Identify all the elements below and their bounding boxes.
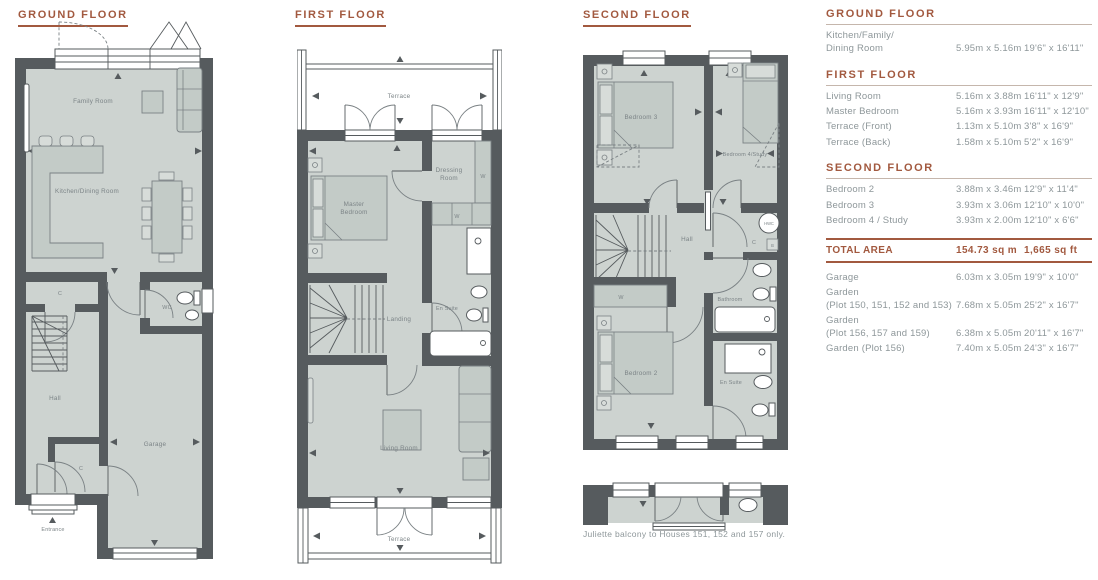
table-row: Garage 6.03m x 3.05m 19'9" x 10'0" <box>826 272 1092 285</box>
open-door-leaf <box>706 192 711 230</box>
wardrobe1-label: W <box>480 174 486 180</box>
garage-door <box>113 548 197 559</box>
table-row: Terrace (Back) 1.58m x 5.10m 5'2" x 16'9… <box>826 137 1092 150</box>
garage-label: Garage <box>144 441 167 448</box>
table-row: Garden (Plot 156, 157 and 159) 6.38m x 5… <box>826 315 1092 341</box>
hall-label: Hall <box>49 395 61 402</box>
juliette-balcony-detail <box>583 483 788 530</box>
window-left <box>24 84 29 152</box>
landing-label: Landing <box>387 316 411 323</box>
family-room-label: Family Room <box>73 98 113 105</box>
table-row: Terrace (Front) 1.13m x 5.10m 3'8" x 16'… <box>826 121 1092 134</box>
hall-label: Hall <box>681 236 693 243</box>
table-row: Kitchen/Family/ Dining Room 5.95m x 5.16… <box>826 30 1092 56</box>
table-row: Garden (Plot 150, 151, 152 and 153) 7.68… <box>826 287 1092 313</box>
metric-size: 5.95m x 5.16m <box>956 43 1024 56</box>
first-floor-plan: Terrace Master Bedroom <box>297 48 502 570</box>
basin <box>186 310 199 320</box>
wardrobe-right <box>475 141 491 203</box>
shower2 <box>725 344 771 373</box>
wc-window <box>202 289 213 313</box>
table-row: Living Room 5.16m x 3.88m 16'11" x 12'9" <box>826 91 1092 104</box>
table-heading-second: SECOND FLOOR <box>826 162 1092 179</box>
shower <box>467 228 491 274</box>
terrace-back: Terrace <box>298 508 501 563</box>
imperial-size: 19'6" x 16'11" <box>1024 43 1092 56</box>
bedroom2-label: Bedroom 2 <box>624 370 657 377</box>
total-label: TOTAL AREA <box>826 245 956 256</box>
table-row: Bedroom 2 3.88m x 3.46m 12'9" x 11'4" <box>826 184 1092 197</box>
table-row: Master Bedroom 5.16m x 3.93m 16'11" x 12… <box>826 106 1092 119</box>
second-floor-title: SECOND FLOOR <box>583 9 691 27</box>
ensuite-basin <box>471 286 487 298</box>
living-sofa <box>459 366 491 480</box>
table-row: Bedroom 3 3.93m x 3.06m 12'10" x 10'0" <box>826 200 1092 213</box>
terrace-front: Terrace <box>297 50 502 130</box>
door-swing-dashed <box>59 22 108 49</box>
entrance-label: Entrance <box>41 527 64 533</box>
floorplan-page: GROUND FLOOR FIRST FLOOR SECOND FLOOR Fa… <box>0 0 1098 580</box>
living-label: Living Room <box>380 445 418 452</box>
table-heading-first: FIRST FLOOR <box>826 69 1092 86</box>
wardrobe-band <box>432 203 491 225</box>
master-bed <box>311 176 387 240</box>
dressing-label-1: Dressing <box>436 167 463 174</box>
ensuite2-toilet <box>752 403 775 416</box>
total-area-row: TOTAL AREA 154.73 sq m 1,665 sq ft <box>826 238 1092 263</box>
bifold-icon <box>150 22 201 49</box>
wardrobe-label: W <box>618 295 624 301</box>
table-row: Bedroom 4 / Study 3.93m x 2.00m 12'10" x… <box>826 215 1092 228</box>
bathroom-basin <box>753 264 771 277</box>
bathroom-tub <box>715 307 775 332</box>
room-name: Kitchen/Family/ Dining Room <box>826 30 956 56</box>
table-heading-ground: GROUND FLOOR <box>826 8 1092 25</box>
wc-label: WC <box>162 305 171 311</box>
ensuite2-label: En Suite <box>720 380 742 386</box>
bifold-window <box>55 49 200 69</box>
bathroom-toilet <box>753 287 776 301</box>
wardrobe <box>594 285 667 307</box>
table-row: Garden (Plot 156) 7.40m x 5.05m 24'3" x … <box>826 343 1092 356</box>
toilet <box>177 291 200 305</box>
hwc-label: HWC <box>764 221 774 226</box>
closet1-label: C <box>58 291 62 297</box>
ensuite-toilet <box>467 308 489 322</box>
bathtub <box>430 331 491 356</box>
ensuite2-basin <box>754 376 772 389</box>
total-imperial: 1,665 sq ft <box>1024 245 1092 256</box>
first-floor-title: FIRST FLOOR <box>295 9 386 27</box>
french-doors-back <box>377 497 432 535</box>
side-table <box>142 91 163 113</box>
entrance-opening <box>31 494 75 505</box>
bathroom-label: Bathroom <box>718 297 743 303</box>
master-label-2: Bedroom <box>340 209 367 216</box>
master-label-1: Master <box>344 201 365 208</box>
closet2-label: C <box>79 466 83 472</box>
second-floor-plan: Bedroom 3 Bedroom 4/Study Hall <box>583 49 788 555</box>
boiler-label: B <box>771 243 774 248</box>
total-metric: 154.73 sq m <box>956 245 1024 256</box>
wardrobe2-label: W <box>454 214 460 220</box>
coffee-table <box>383 410 421 450</box>
dimensions-table: GROUND FLOOR Kitchen/Family/ Dining Room… <box>826 8 1092 359</box>
tv-unit <box>308 378 313 423</box>
ensuite-label: En Suite <box>436 306 458 312</box>
terrace-front-label: Terrace <box>388 93 411 100</box>
dressing-label-2: Room <box>440 175 458 182</box>
kitchen-label: Kitchen/Dining Room <box>55 188 119 195</box>
terrace-back-label: Terrace <box>388 536 411 543</box>
ground-floor-plan: Family Room Kitchen/Dining Room <box>15 16 215 561</box>
juliette-note: Juliette balcony to Houses 151, 152 and … <box>583 529 785 539</box>
bedroom3-label: Bedroom 3 <box>624 114 657 121</box>
sofa <box>177 68 202 132</box>
cupboard-label: C <box>752 240 756 246</box>
